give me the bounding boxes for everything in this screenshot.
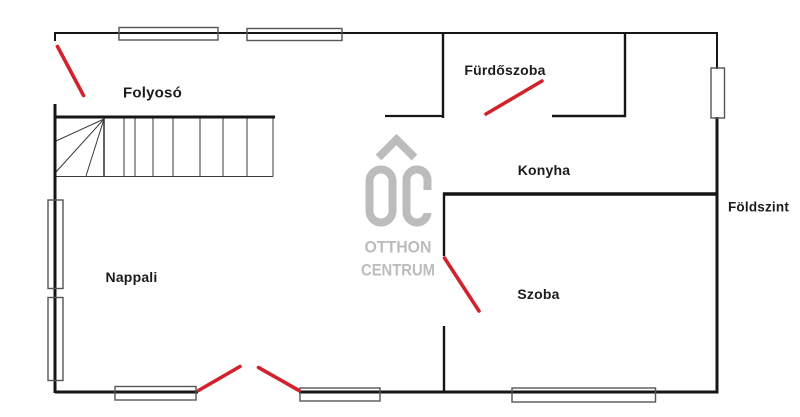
oc-monogram-letter-o <box>370 170 393 223</box>
szoba-door-swing-line <box>445 258 480 311</box>
otthon-centrum-watermark: OTTHON CENTRUM <box>361 140 436 280</box>
floor-plan-drawing: OTTHON CENTRUM <box>0 0 800 417</box>
window-symbol <box>711 68 725 118</box>
stair-winder-line <box>56 119 104 172</box>
floor-plan: OTTHON CENTRUM <box>0 0 800 417</box>
floor-level-label: Földszint <box>728 199 789 214</box>
stair-winder-line <box>56 119 104 141</box>
room-label-furdoszoba: Fürdőszoba <box>464 62 545 78</box>
room-label-nappali: Nappali <box>106 269 158 285</box>
watermark-line1: OTTHON <box>365 239 432 257</box>
entry-door-swing-line <box>58 47 84 96</box>
room-label-konyha: Konyha <box>518 162 571 178</box>
room-label-folyoso: Folyosó <box>123 85 182 102</box>
window-symbol <box>512 388 656 402</box>
oc-monogram-c-gap <box>422 190 436 213</box>
watermark-line2: CENTRUM <box>361 262 435 280</box>
window-symbol <box>300 388 380 401</box>
terrace-door-swing-line-right <box>259 368 300 391</box>
roof-caret-icon <box>379 140 415 158</box>
room-label-szoba: Szoba <box>517 286 559 302</box>
staircase <box>56 118 273 178</box>
stair-winder-line <box>86 119 104 176</box>
terrace-door-swing-line-left <box>199 367 241 391</box>
window-symbol <box>247 29 342 41</box>
bathroom-door-swing-line <box>486 81 542 114</box>
